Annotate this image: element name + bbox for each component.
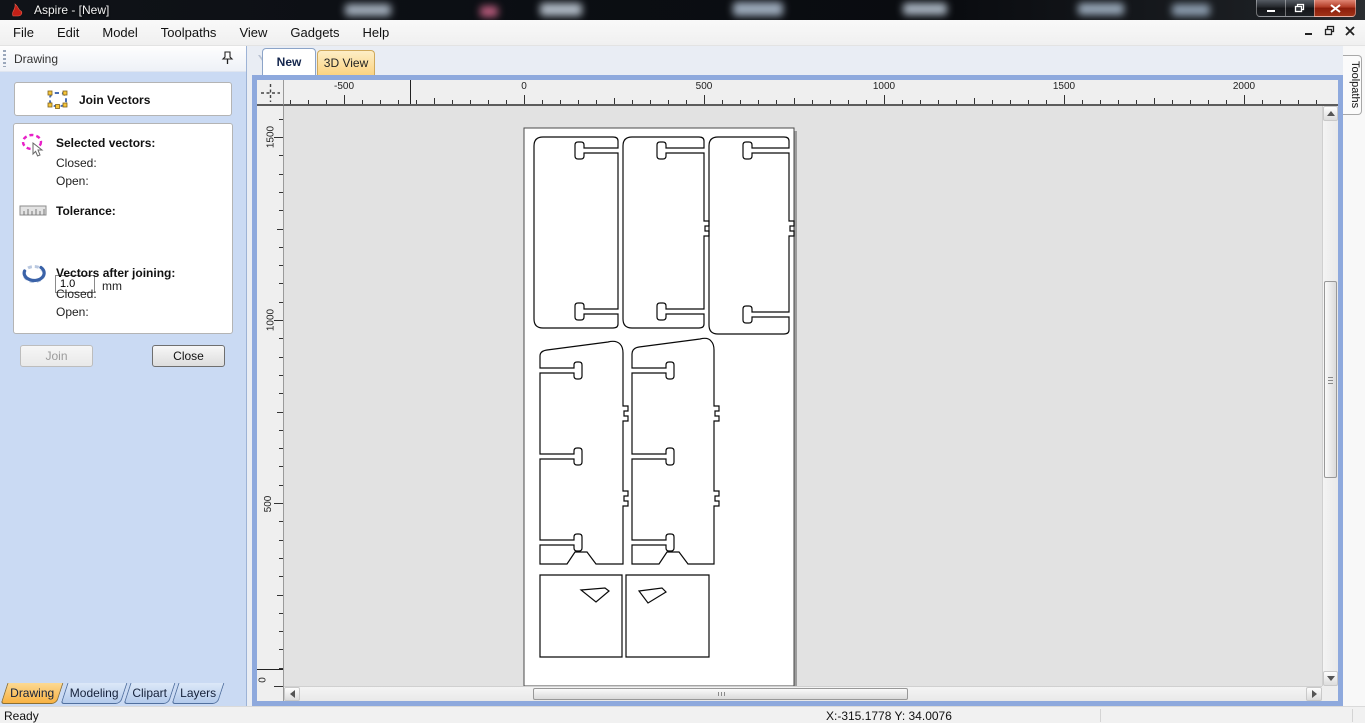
ruler-tick (506, 100, 507, 104)
vertical-ruler: 150010005000 (257, 106, 284, 701)
tab-toolpaths[interactable]: Toolpaths (1343, 55, 1362, 115)
ruler-tick (277, 229, 283, 230)
ruler-tick (974, 98, 975, 104)
ruler-tick (279, 210, 283, 211)
ruler-tick (308, 100, 309, 104)
mdi-close-button[interactable] (1345, 26, 1355, 36)
vectors-after-joining-icon (19, 262, 51, 286)
ruler-tick (279, 283, 283, 284)
ruler-tick (1208, 100, 1209, 104)
glass-reflection (903, 3, 947, 15)
ruler-tick (830, 100, 831, 104)
ruler-tick (848, 100, 849, 104)
ruler-label: 0 (257, 677, 268, 683)
menu-toolpaths[interactable]: Toolpaths (151, 21, 227, 44)
status-ready: Ready (4, 709, 39, 723)
ruler-tick (776, 100, 777, 104)
menubar: File Edit Model Toolpaths View Gadgets H… (0, 20, 1365, 46)
ruler-tick (277, 412, 283, 413)
status-separator (1100, 709, 1101, 722)
view-tab-strip: New 3D View (247, 46, 1365, 75)
ruler-tick (758, 100, 759, 104)
ruler-tick (344, 95, 345, 104)
ruler-tick (812, 100, 813, 104)
mdi-restore-button[interactable] (1324, 25, 1335, 36)
ruler-tick (1316, 100, 1317, 104)
ruler-tick (362, 100, 363, 104)
ruler-label: 500 (263, 496, 274, 513)
ruler-tick (866, 100, 867, 104)
join-button[interactable]: Join (20, 345, 93, 367)
tab-layers[interactable]: Layers (172, 683, 225, 704)
mdi-minimize-button[interactable] (1304, 26, 1314, 36)
scroll-right-button[interactable] (1306, 687, 1322, 701)
menu-edit[interactable]: Edit (47, 21, 89, 44)
ruler-tick (632, 100, 633, 104)
selected-open-label: Open: (56, 174, 89, 188)
ruler-tick (279, 375, 283, 376)
ruler-tick (1190, 100, 1191, 104)
menu-help[interactable]: Help (353, 21, 400, 44)
ruler-tick (416, 100, 417, 104)
ruler-tick (542, 100, 543, 104)
scrollbar-corner (1322, 686, 1338, 701)
ruler-tick (992, 100, 993, 104)
ruler-tick (470, 100, 471, 104)
tolerance-heading: Tolerance: (56, 204, 116, 218)
ruler-tick (1244, 95, 1245, 104)
ruler-tick (290, 100, 291, 104)
ruler-tick (279, 485, 283, 486)
glass-reflection (1078, 3, 1124, 15)
ruler-tick (740, 100, 741, 104)
tab-new[interactable]: New (262, 48, 316, 75)
glass-reflection (733, 2, 783, 16)
ruler-tick (434, 98, 435, 104)
ruler-tick (722, 100, 723, 104)
ruler-tick (279, 192, 283, 193)
ruler-label: 0 (521, 81, 527, 92)
ruler-tick (279, 302, 283, 303)
ruler-tick (279, 393, 283, 394)
join-vectors-header: Join Vectors (14, 82, 232, 116)
glass-reflection (540, 3, 582, 16)
ruler-tick (277, 595, 283, 596)
main-area: New 3D View -5000500100015002000 1500100… (247, 46, 1365, 706)
ruler-label: 1500 (266, 126, 277, 148)
ruler-tick (279, 631, 283, 632)
tab-modeling[interactable]: Modeling (61, 683, 128, 704)
glass-reflection (1172, 4, 1210, 16)
ruler-tick (279, 521, 283, 522)
ruler-tick (902, 100, 903, 104)
ruler-cursor-marker (257, 669, 283, 670)
selected-closed-label: Closed: (56, 156, 97, 170)
ruler-tick (560, 100, 561, 104)
ruler-tick (1262, 100, 1263, 104)
after-closed-label: Closed: (56, 287, 97, 301)
window-restore-button[interactable] (1286, 0, 1314, 17)
menu-model[interactable]: Model (92, 21, 147, 44)
scroll-left-button[interactable] (284, 687, 300, 701)
menu-file[interactable]: File (3, 21, 44, 44)
ruler-tick (1226, 100, 1227, 104)
ruler-tick (1280, 100, 1281, 104)
window-controls (1256, 0, 1356, 17)
ruler-tick (938, 100, 939, 104)
join-vectors-icon (47, 90, 69, 110)
ruler-tick (956, 100, 957, 104)
ruler-tick (614, 98, 615, 104)
ruler-tick (1082, 100, 1083, 104)
ruler-label: 2000 (1233, 81, 1255, 92)
ruler-tick (1028, 100, 1029, 104)
ruler-tick (650, 100, 651, 104)
ruler-tick (920, 100, 921, 104)
material-sheet[interactable] (524, 128, 794, 686)
ruler-tick (1298, 100, 1299, 104)
statusbar: Ready X:-315.1778 Y: 34.0076 (0, 706, 1365, 723)
ruler-tick (704, 95, 705, 104)
ruler-label: 1500 (1053, 81, 1075, 92)
glass-reflection (345, 4, 391, 16)
ruler-tick (279, 466, 283, 467)
ruler-tick (1118, 100, 1119, 104)
menu-gadgets[interactable]: Gadgets (280, 21, 349, 44)
ruler-tick (274, 503, 283, 504)
ruler-tick (279, 558, 283, 559)
ruler-tick (686, 100, 687, 104)
horizontal-ruler: -5000500100015002000 (284, 80, 1322, 106)
ruler-tick (274, 686, 283, 687)
ruler-tick (884, 95, 885, 104)
window-minimize-button[interactable] (1256, 0, 1286, 17)
ruler-origin-box (257, 80, 284, 106)
tool-title: Join Vectors (79, 93, 150, 107)
drawing-panel: Drawing Join Vectors Selected vectors: C… (0, 46, 247, 706)
drawing-viewport: -5000500100015002000 150010005000 (252, 75, 1343, 706)
vertical-scroll-thumb[interactable] (1324, 281, 1337, 478)
menu-view[interactable]: View (229, 21, 277, 44)
tolerance-ruler-icon (19, 204, 49, 218)
ruler-tick (398, 100, 399, 104)
ruler-tick (279, 576, 283, 577)
ruler-tick (279, 649, 283, 650)
panel-title: Drawing (14, 52, 58, 66)
origin-crosshair-icon (257, 80, 284, 106)
ruler-tick (279, 155, 283, 156)
ruler-tick (279, 430, 283, 431)
selected-vectors-icon (19, 132, 51, 158)
ruler-tick (279, 338, 283, 339)
status-separator (1352, 709, 1353, 722)
tab-3d-view[interactable]: 3D View (317, 50, 375, 75)
vector-drawing[interactable] (284, 106, 1322, 686)
scroll-up-button[interactable] (1323, 106, 1338, 121)
titlebar: Aspire - [New] (0, 0, 1365, 20)
ruler-tick (279, 247, 283, 248)
ruler-tick (1010, 100, 1011, 104)
ruler-tick (452, 100, 453, 104)
pin-icon[interactable] (221, 51, 234, 65)
horizontal-scrollbar[interactable] (284, 686, 1322, 701)
ruler-tick (326, 100, 327, 104)
mdi-window-controls (1304, 25, 1355, 36)
ruler-tick (279, 540, 283, 541)
ruler-label: 1000 (266, 309, 277, 331)
ruler-tick (794, 98, 795, 104)
selected-vectors-heading: Selected vectors: (56, 136, 155, 150)
ruler-cursor-marker (410, 80, 411, 104)
ruler-label: 1000 (873, 81, 895, 92)
ruler-tick (1154, 98, 1155, 104)
ruler-label: 500 (696, 81, 713, 92)
ruler-tick (1100, 100, 1101, 104)
glass-reflection (480, 6, 498, 17)
ruler-tick (1046, 100, 1047, 104)
ruler-tick (488, 100, 489, 104)
ruler-cap (1322, 80, 1338, 106)
tab-drawing[interactable]: Drawing (1, 683, 64, 704)
ruler-tick (524, 95, 525, 104)
ruler-tick (279, 448, 283, 449)
window-title: Aspire - [New] (34, 3, 109, 17)
ruler-tick (279, 265, 283, 266)
window-close-button[interactable] (1314, 0, 1356, 17)
ruler-tick (1064, 95, 1065, 104)
tolerance-unit: mm (102, 279, 122, 293)
tab-clipart[interactable]: Clipart (124, 683, 176, 704)
panel-grip[interactable] (3, 50, 6, 67)
ruler-tick (596, 100, 597, 104)
ruler-tick (279, 613, 283, 614)
after-open-label: Open: (56, 305, 89, 319)
panel-header: Drawing (0, 46, 246, 72)
panel-tab-strip: Drawing Modeling Clipart Layers (0, 683, 247, 706)
ruler-tick (668, 100, 669, 104)
drawing-canvas[interactable] (284, 106, 1322, 686)
ruler-label: -500 (334, 81, 354, 92)
ruler-tick (279, 119, 283, 120)
cursor-coordinates: X:-315.1778 Y: 34.0076 (826, 709, 952, 723)
app-logo-flame-icon (10, 3, 24, 17)
join-vectors-groupbox: Selected vectors: Closed: Open: Toleranc… (13, 123, 233, 334)
scroll-down-button[interactable] (1323, 671, 1338, 686)
after-joining-heading: Vectors after joining: (56, 266, 175, 280)
ruler-tick (279, 357, 283, 358)
ruler-tick (578, 100, 579, 104)
horizontal-scroll-thumb[interactable] (533, 688, 908, 700)
close-button[interactable]: Close (152, 345, 225, 367)
vertical-scrollbar[interactable] (1322, 106, 1338, 686)
ruler-tick (380, 100, 381, 104)
ruler-tick (1136, 100, 1137, 104)
ruler-tick (1172, 100, 1173, 104)
ruler-tick (279, 174, 283, 175)
right-tab-strip: Toolpaths (1343, 46, 1365, 706)
